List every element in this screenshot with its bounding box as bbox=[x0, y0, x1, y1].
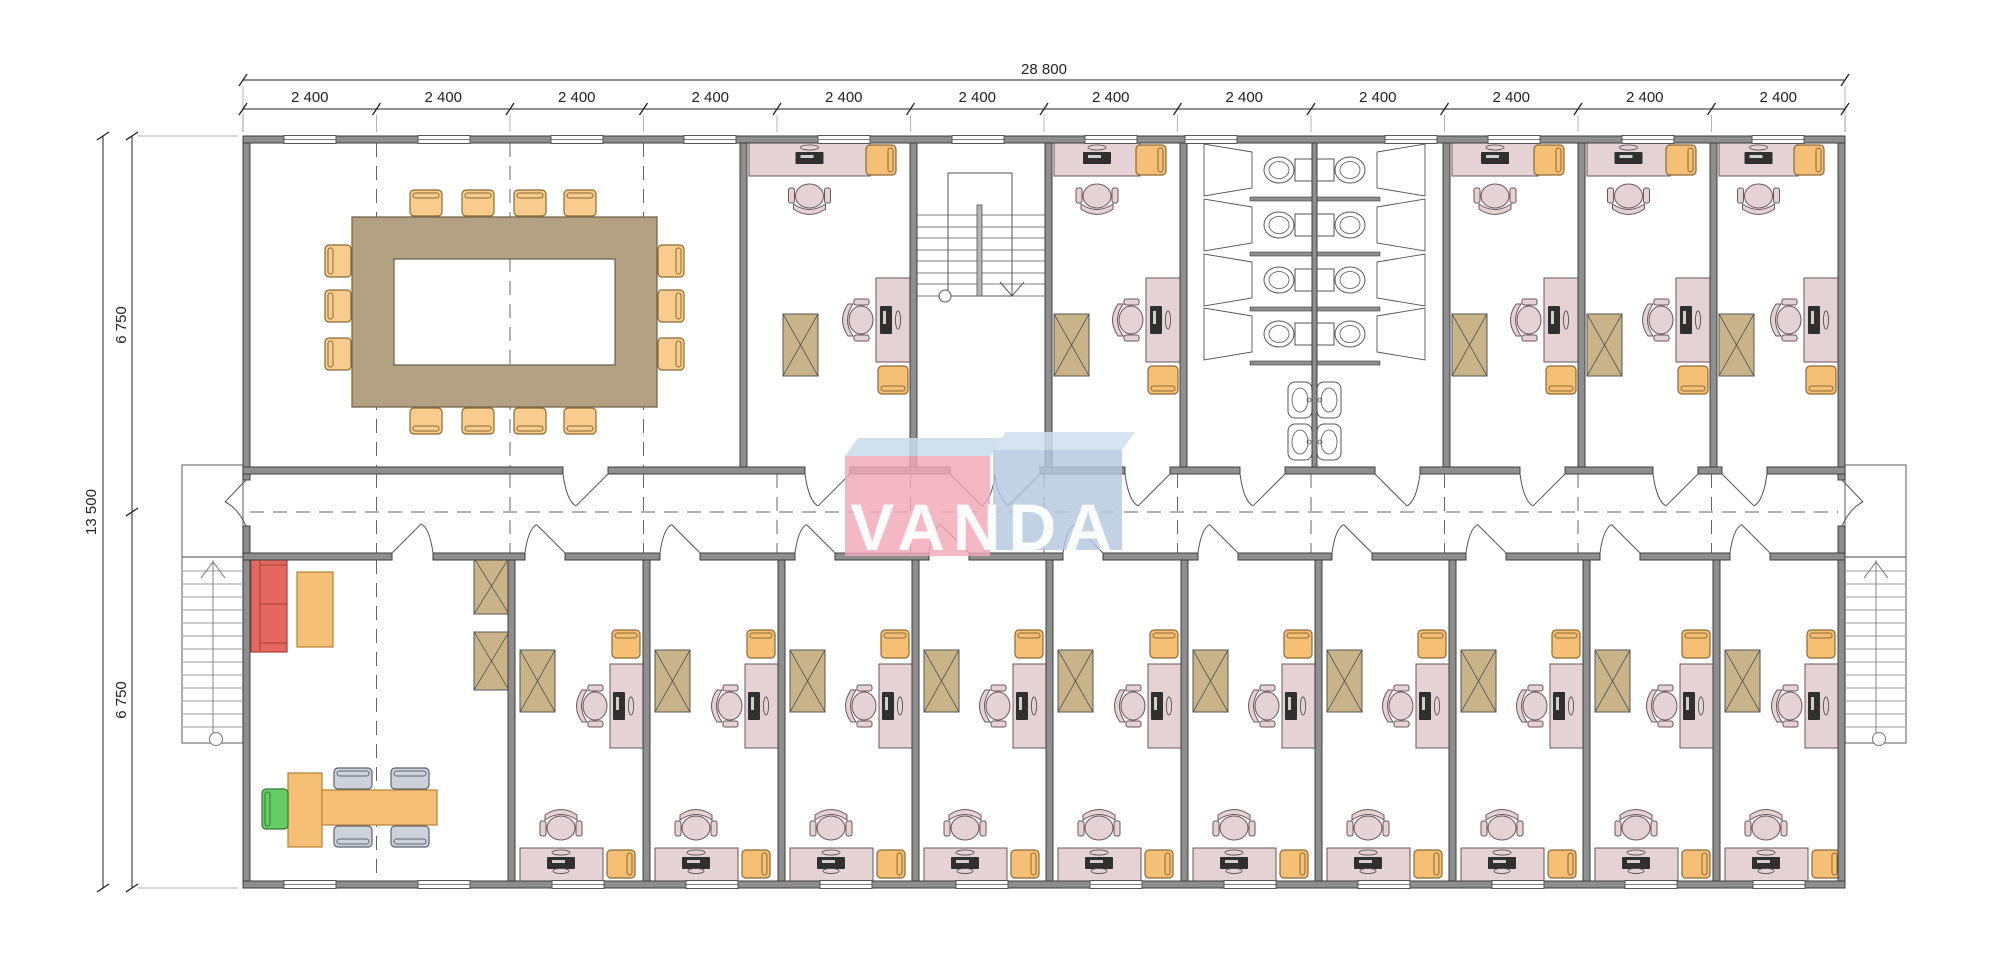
door-arc bbox=[1653, 474, 1666, 506]
dimension-label: 2 400 bbox=[1759, 89, 1797, 106]
exterior-stairs-left bbox=[182, 465, 243, 746]
armchair-icon bbox=[612, 630, 640, 658]
reception-table bbox=[322, 790, 437, 825]
door-arc bbox=[795, 525, 807, 553]
stair-hall bbox=[917, 173, 1045, 302]
cabinet-icon bbox=[783, 314, 818, 376]
dimension-label: 2 400 bbox=[1492, 89, 1530, 106]
door-arc bbox=[660, 525, 672, 553]
window-icon bbox=[952, 136, 1004, 144]
office-chair-icon bbox=[1347, 810, 1389, 841]
dimension-label: 2 400 bbox=[558, 89, 596, 106]
bottom-office-3 bbox=[790, 630, 912, 881]
office-chair-icon bbox=[1113, 299, 1144, 341]
door-arc bbox=[805, 474, 818, 506]
dimension-label: 2 400 bbox=[1092, 89, 1130, 106]
wall bbox=[1710, 143, 1717, 467]
door-arc bbox=[1730, 525, 1742, 553]
cabinet-icon bbox=[474, 558, 509, 614]
armchair-icon bbox=[866, 145, 896, 175]
window-icon bbox=[1492, 881, 1544, 889]
door-arc bbox=[1198, 525, 1210, 553]
dimension-label: 2 400 bbox=[424, 89, 462, 106]
door-arc bbox=[1253, 474, 1285, 506]
dimension-label: 6 750 bbox=[113, 306, 130, 344]
wall bbox=[243, 526, 250, 881]
door-arc bbox=[1478, 525, 1506, 553]
wall bbox=[740, 143, 747, 467]
door-arc bbox=[421, 524, 433, 553]
stall-door bbox=[1204, 144, 1252, 196]
door-arc bbox=[1666, 474, 1698, 506]
office-chair-icon bbox=[980, 685, 1011, 727]
wall bbox=[1285, 467, 1375, 474]
wall bbox=[1449, 560, 1456, 881]
door-arc bbox=[1520, 474, 1533, 506]
window-icon bbox=[1358, 881, 1410, 889]
armchair-icon bbox=[1666, 145, 1696, 175]
wall bbox=[243, 467, 563, 474]
visitor-chair-icon bbox=[391, 768, 429, 789]
office-chair-icon bbox=[843, 299, 874, 341]
stall-door bbox=[1377, 199, 1425, 251]
wall bbox=[1640, 553, 1730, 560]
reception-office bbox=[246, 556, 509, 847]
dimension-label: 13 500 bbox=[83, 489, 100, 535]
office-chair-icon bbox=[789, 184, 831, 215]
armchair-icon bbox=[878, 366, 908, 394]
office-chair-icon bbox=[1745, 810, 1787, 841]
bottom-office-4 bbox=[924, 630, 1046, 881]
exterior-stairs-right bbox=[1845, 465, 1906, 746]
dimension-label: 2 400 bbox=[1626, 89, 1664, 106]
wall bbox=[700, 553, 795, 560]
stall-door bbox=[1204, 308, 1252, 360]
door-arc bbox=[1600, 525, 1612, 553]
sink-icon bbox=[1317, 382, 1341, 418]
window-icon bbox=[1625, 881, 1677, 889]
cabinet-icon bbox=[1719, 314, 1754, 376]
visitor-chair-icon bbox=[334, 826, 372, 847]
cabinet-icon bbox=[1193, 650, 1228, 712]
door-arc bbox=[1125, 474, 1138, 506]
stall-door bbox=[1377, 308, 1425, 360]
door-arc bbox=[1375, 474, 1407, 506]
toilet-icon bbox=[1317, 267, 1365, 293]
wall bbox=[1770, 553, 1845, 560]
window-icon bbox=[684, 136, 736, 144]
wall bbox=[608, 467, 805, 474]
bottom-office-6 bbox=[1193, 630, 1315, 881]
visitor-chair-icon bbox=[391, 826, 429, 847]
stall-door bbox=[1377, 144, 1425, 196]
toilet-icon bbox=[1264, 212, 1312, 238]
wall bbox=[1838, 143, 1845, 480]
armchair-icon bbox=[1015, 630, 1043, 658]
wall bbox=[1565, 467, 1653, 474]
armchair-icon bbox=[1682, 850, 1710, 878]
wall bbox=[243, 136, 1845, 143]
dimension-label: 2 400 bbox=[1359, 89, 1397, 106]
wall bbox=[912, 560, 919, 881]
conference-chair-icon bbox=[410, 408, 442, 434]
dimension-label: 2 400 bbox=[958, 89, 996, 106]
toilet-icon bbox=[1264, 267, 1312, 293]
armchair-icon bbox=[1280, 850, 1308, 878]
door-arc bbox=[1407, 474, 1420, 506]
bottom-office-7 bbox=[1327, 630, 1449, 881]
cabinet-icon bbox=[1058, 650, 1093, 712]
armchair-icon bbox=[1284, 630, 1312, 658]
cabinet-icon bbox=[1327, 650, 1362, 712]
door-arc bbox=[1210, 525, 1238, 553]
toilet-icon bbox=[1264, 321, 1312, 347]
conference-chair-icon bbox=[325, 338, 351, 370]
dimension-label: 28 800 bbox=[1021, 61, 1067, 78]
cabinet-icon bbox=[655, 650, 690, 712]
conference-chair-icon bbox=[325, 290, 351, 322]
armchair-icon bbox=[1145, 850, 1173, 878]
wall bbox=[778, 560, 785, 881]
sink-icon bbox=[1317, 424, 1341, 460]
top-office-5 bbox=[1719, 143, 1838, 394]
wall bbox=[243, 143, 250, 480]
window-icon bbox=[818, 136, 870, 144]
toilet-icon bbox=[1317, 157, 1365, 183]
window-icon bbox=[418, 136, 470, 144]
top-office-1 bbox=[749, 143, 910, 394]
wall bbox=[1312, 143, 1317, 467]
office-chair-icon bbox=[1647, 685, 1678, 727]
reception-desk bbox=[288, 773, 322, 847]
top-office-2 bbox=[1054, 143, 1180, 394]
window-icon bbox=[1753, 881, 1805, 889]
conference-chair-icon bbox=[564, 408, 596, 434]
window-icon bbox=[1085, 136, 1137, 144]
armchair-icon bbox=[877, 850, 905, 878]
sofa-icon bbox=[251, 556, 287, 652]
armchair-icon bbox=[1807, 630, 1835, 658]
wall bbox=[1045, 143, 1052, 467]
office-chair-icon bbox=[540, 810, 582, 841]
armchair-icon bbox=[1806, 366, 1836, 394]
armchair-icon bbox=[1011, 850, 1039, 878]
window-icon bbox=[1185, 136, 1237, 144]
stall-door bbox=[1204, 199, 1252, 251]
office-chair-icon bbox=[1771, 299, 1802, 341]
armchair-icon bbox=[1682, 630, 1710, 658]
armchair-icon bbox=[1794, 145, 1824, 175]
conference-chair-icon bbox=[514, 190, 546, 216]
window-icon bbox=[284, 136, 336, 144]
wall bbox=[1180, 143, 1187, 467]
door-arc bbox=[537, 525, 565, 553]
dimension-top-bays: 2 4002 4002 4002 4002 4002 4002 4002 400… bbox=[239, 89, 1849, 132]
office-chair-icon bbox=[1738, 184, 1780, 215]
office-chair-icon bbox=[1511, 299, 1542, 341]
cabinet-icon bbox=[1054, 314, 1089, 376]
window-icon bbox=[552, 881, 604, 889]
wall bbox=[1315, 560, 1322, 881]
floor-plan-drawing: 28 8002 4002 4002 4002 4002 4002 4002 40… bbox=[0, 0, 2000, 980]
cabinet-icon bbox=[520, 650, 555, 712]
logo-block-pink-top bbox=[845, 438, 1003, 456]
armchair-icon bbox=[1678, 366, 1708, 394]
wall bbox=[643, 560, 650, 881]
bottom-office-2 bbox=[655, 630, 778, 881]
wall bbox=[1767, 467, 1845, 474]
cabinet-icon bbox=[1725, 650, 1760, 712]
office-chair-icon bbox=[577, 685, 608, 727]
dimension-label: 2 400 bbox=[1225, 89, 1263, 106]
wall bbox=[1578, 143, 1585, 467]
office-chair-icon bbox=[1213, 810, 1255, 841]
office-chair-icon bbox=[1115, 685, 1146, 727]
wall bbox=[565, 553, 660, 560]
toilet-icon bbox=[1264, 157, 1312, 183]
sink-icon bbox=[1288, 382, 1312, 418]
window-icon bbox=[686, 881, 738, 889]
conference-chair-icon bbox=[658, 245, 684, 277]
dimension-label: 6 750 bbox=[113, 681, 130, 719]
cabinet-icon bbox=[1587, 314, 1622, 376]
door-arc bbox=[1138, 474, 1170, 506]
conference-chair-icon bbox=[658, 338, 684, 370]
window-icon bbox=[418, 881, 470, 889]
door-arc bbox=[1332, 525, 1344, 553]
bottom-office-9 bbox=[1595, 630, 1713, 881]
vanda-logo: VANDA bbox=[845, 432, 1135, 564]
office-chair-icon bbox=[1078, 810, 1120, 841]
conference-chair-icon bbox=[410, 190, 442, 216]
wall bbox=[1698, 467, 1722, 474]
conference-chair-icon bbox=[462, 190, 494, 216]
visitor-chair-icon bbox=[334, 768, 372, 789]
door-arc bbox=[1240, 474, 1253, 506]
wall bbox=[1181, 560, 1188, 881]
dimension-label: 2 400 bbox=[825, 89, 863, 106]
door-arc bbox=[576, 474, 608, 506]
office-chair-icon bbox=[1474, 184, 1516, 215]
armchair-icon bbox=[742, 850, 770, 878]
sink-icon bbox=[1288, 424, 1312, 460]
manager-chair-icon bbox=[262, 789, 288, 829]
wall bbox=[1170, 467, 1240, 474]
armchair-icon bbox=[1418, 630, 1446, 658]
toilet-icon bbox=[1317, 212, 1365, 238]
office-chair-icon bbox=[1249, 685, 1280, 727]
door-arc bbox=[525, 525, 537, 553]
armchair-icon bbox=[1150, 630, 1178, 658]
office-chair-icon bbox=[1643, 299, 1674, 341]
armchair-icon bbox=[1414, 850, 1442, 878]
wall bbox=[1420, 467, 1520, 474]
wall bbox=[1238, 553, 1332, 560]
cabinet-icon bbox=[924, 650, 959, 712]
conference-chair-icon bbox=[325, 245, 351, 277]
logo-text: VANDA bbox=[850, 490, 1120, 564]
office-chair-icon bbox=[1517, 685, 1548, 727]
wall bbox=[910, 143, 917, 467]
cabinet-icon bbox=[1595, 650, 1630, 712]
office-chair-icon bbox=[944, 810, 986, 841]
dimension-label: 2 400 bbox=[291, 89, 329, 106]
dimension-label: 2 400 bbox=[691, 89, 729, 106]
office-chair-icon bbox=[1076, 184, 1118, 215]
window-icon bbox=[1488, 136, 1540, 144]
door-arc bbox=[1344, 525, 1372, 553]
wall bbox=[1046, 560, 1053, 881]
wall bbox=[1713, 560, 1720, 881]
bottom-office-5 bbox=[1058, 630, 1181, 881]
wall bbox=[243, 881, 1845, 888]
armchair-icon bbox=[1148, 366, 1178, 394]
wall bbox=[1443, 143, 1450, 467]
conference-chair-icon bbox=[564, 190, 596, 216]
conference-chair-icon bbox=[514, 408, 546, 434]
bottom-office-1 bbox=[520, 630, 643, 881]
logo-block-blue-top bbox=[993, 432, 1135, 450]
bottom-office-10 bbox=[1725, 630, 1840, 881]
door-arc bbox=[1754, 474, 1767, 506]
armchair-icon bbox=[747, 630, 775, 658]
office-chair-icon bbox=[1481, 810, 1523, 841]
bottom-office-8 bbox=[1461, 630, 1583, 881]
armchair-icon bbox=[1136, 145, 1166, 175]
door-arc bbox=[1533, 474, 1565, 506]
window-icon bbox=[284, 881, 336, 889]
door-arc bbox=[563, 474, 576, 506]
wall bbox=[1838, 526, 1845, 881]
window-icon bbox=[1385, 136, 1437, 144]
office-chair-icon bbox=[1772, 685, 1803, 727]
window-icon bbox=[1752, 136, 1804, 144]
office-chair-icon bbox=[1383, 685, 1414, 727]
wall bbox=[1372, 553, 1466, 560]
window-icon bbox=[1090, 881, 1142, 889]
cabinet-icon bbox=[790, 650, 825, 712]
office-chair-icon bbox=[712, 685, 743, 727]
door-arc bbox=[1466, 525, 1478, 553]
armchair-icon bbox=[1546, 366, 1576, 394]
armchair-icon bbox=[1812, 850, 1840, 878]
window-icon bbox=[1224, 881, 1276, 889]
dimension-left: 13 5006 7506 750 bbox=[83, 132, 238, 892]
conference-room bbox=[325, 190, 684, 434]
armchair-icon bbox=[1534, 145, 1564, 175]
wall bbox=[1506, 553, 1600, 560]
window-icon bbox=[956, 881, 1008, 889]
floorplan-page: 28 8002 4002 4002 4002 4002 4002 4002 40… bbox=[0, 0, 2000, 980]
cabinet-icon bbox=[1461, 650, 1496, 712]
office-chair-icon bbox=[1608, 184, 1650, 215]
armchair-icon bbox=[1548, 850, 1576, 878]
top-office-3 bbox=[1452, 143, 1578, 394]
wall bbox=[243, 553, 392, 560]
conference-chair-icon bbox=[658, 290, 684, 322]
office-chair-icon bbox=[846, 685, 877, 727]
door-arc bbox=[807, 525, 835, 553]
office-chair-icon bbox=[810, 810, 852, 841]
door-arc bbox=[1612, 525, 1640, 553]
cabinet-icon bbox=[1452, 314, 1487, 376]
door-arc bbox=[1722, 474, 1754, 506]
armchair-icon bbox=[1552, 630, 1580, 658]
wall bbox=[508, 560, 515, 881]
door-arc bbox=[672, 525, 700, 553]
office-chair-icon bbox=[1615, 810, 1657, 841]
window-icon bbox=[820, 881, 872, 889]
door-arc bbox=[1742, 525, 1770, 553]
armchair-icon bbox=[607, 850, 635, 878]
meeting-table bbox=[352, 217, 657, 407]
office-chair-icon bbox=[675, 810, 717, 841]
stall-door bbox=[1204, 254, 1252, 306]
window-icon bbox=[1622, 136, 1674, 144]
coffee-table bbox=[297, 572, 333, 647]
door-arc bbox=[392, 524, 421, 553]
cabinet-icon bbox=[474, 632, 509, 690]
conference-chair-icon bbox=[462, 408, 494, 434]
top-office-4 bbox=[1587, 143, 1710, 394]
armchair-icon bbox=[881, 630, 909, 658]
wall bbox=[1583, 560, 1590, 881]
window-icon bbox=[551, 136, 603, 144]
toilet-icon bbox=[1317, 321, 1365, 347]
stall-door bbox=[1377, 254, 1425, 306]
wall bbox=[433, 553, 525, 560]
